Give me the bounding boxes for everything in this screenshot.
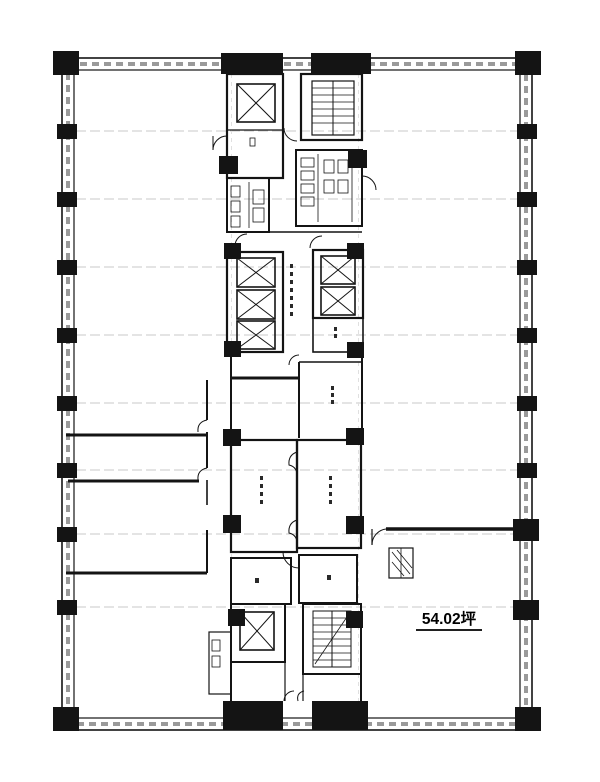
core-lower-rooms <box>223 440 364 568</box>
restroom-left <box>227 178 269 232</box>
elevator-icon <box>321 256 355 284</box>
door-arc <box>362 176 376 190</box>
door-arc <box>213 136 227 150</box>
door-arc <box>372 529 386 545</box>
restroom-small <box>209 632 231 694</box>
top-core-wall-block <box>311 53 371 74</box>
door-arc <box>289 355 299 365</box>
core-mid-rooms <box>198 352 364 505</box>
staircase-upper-icon <box>312 81 354 135</box>
door-swing <box>198 420 207 432</box>
door-swing <box>289 520 297 546</box>
top-core-wall-block <box>221 53 283 74</box>
corner-column <box>515 707 541 731</box>
service-shaft <box>389 548 413 578</box>
elevator-icon <box>237 84 275 122</box>
right-zone: 54.02坪 <box>372 529 519 630</box>
elevator-icon <box>237 258 275 287</box>
door-arc <box>284 128 297 141</box>
elevator-icon <box>240 612 274 650</box>
door-swing <box>289 452 297 478</box>
left-partitions <box>66 435 207 573</box>
area-label: 54.02坪 <box>422 610 477 628</box>
upper-core <box>213 74 376 248</box>
bottom-core-wall-block <box>223 701 283 730</box>
elevator-icon <box>237 321 275 349</box>
elevator-hall-label <box>290 264 293 316</box>
bottom-core-wall-block <box>312 701 368 730</box>
elevator-bank <box>224 243 364 358</box>
floor-plan-svg: 54.02坪 <box>0 0 600 782</box>
lower-core <box>209 555 363 701</box>
corner-column <box>515 51 541 75</box>
corner-column <box>53 707 79 731</box>
corner-column <box>53 51 79 75</box>
door-arc <box>310 236 322 248</box>
floor-plan: 54.02坪 <box>0 0 600 782</box>
restroom-right <box>296 150 362 226</box>
elevator-icon <box>237 290 275 319</box>
elevator-icon <box>321 287 355 315</box>
